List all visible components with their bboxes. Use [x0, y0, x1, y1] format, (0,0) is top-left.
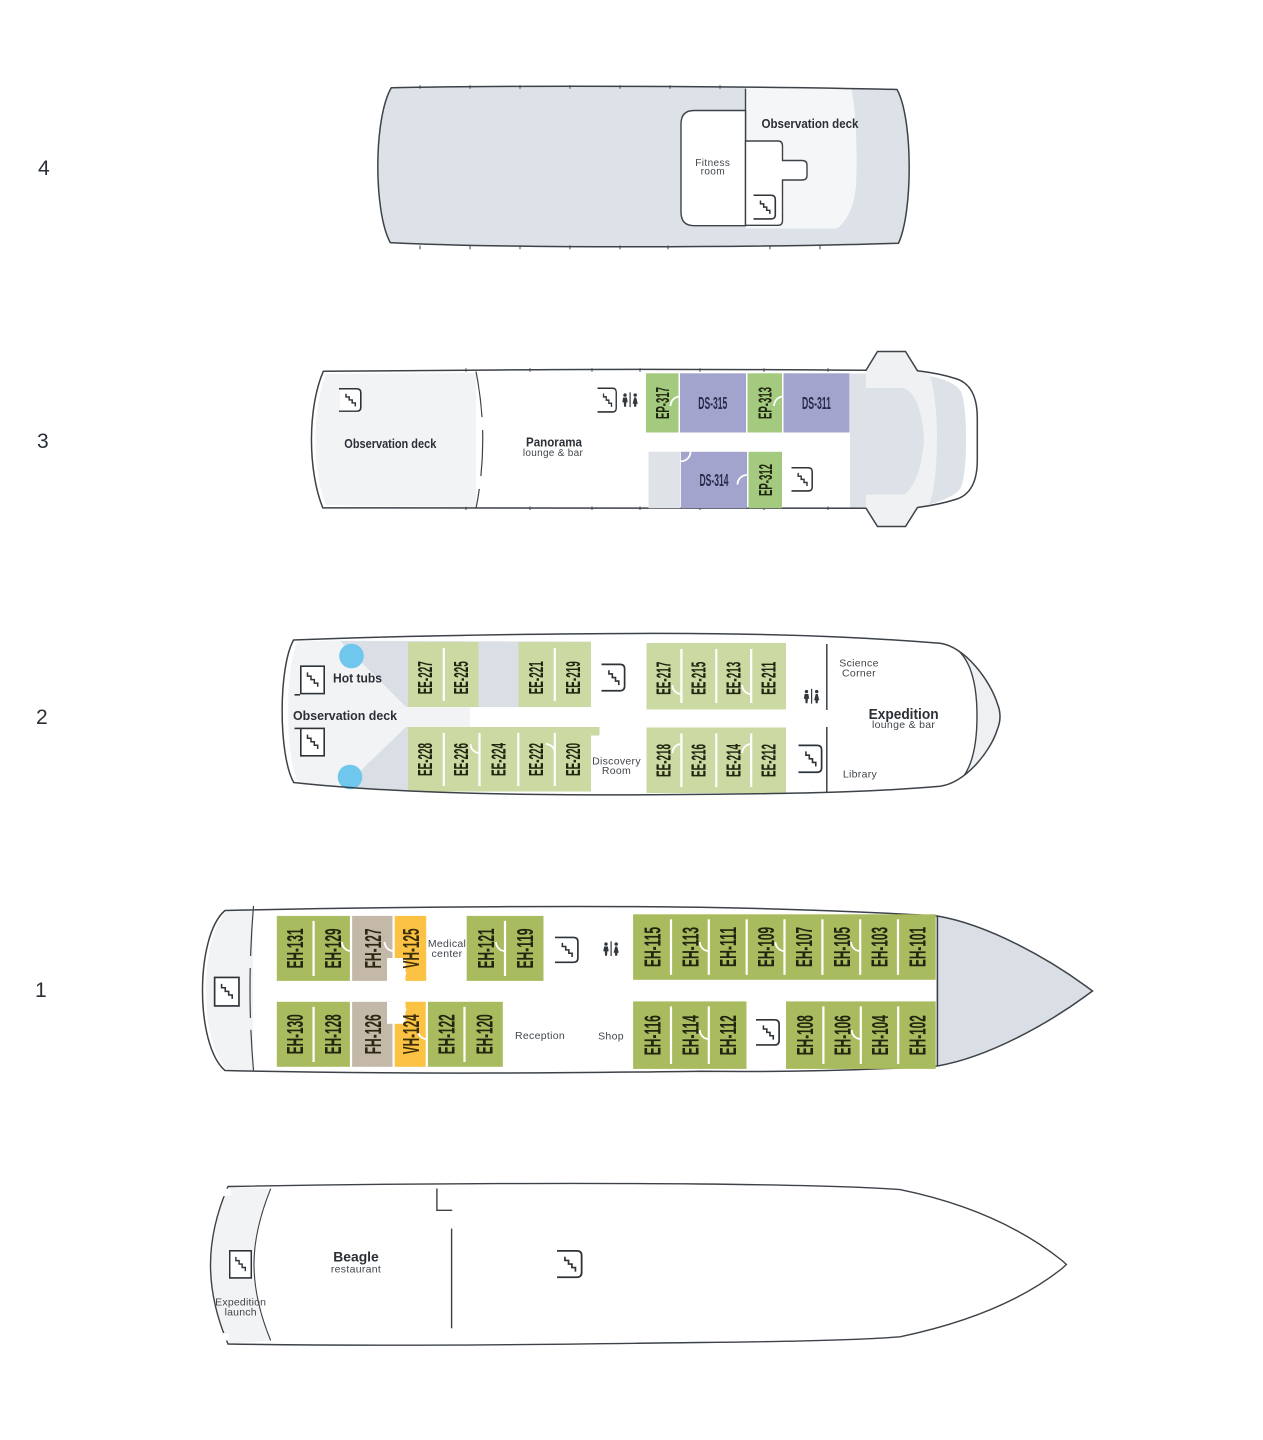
svg-text:Observation deck: Observation deck — [344, 436, 437, 451]
svg-text:FH-127: FH-127 — [360, 928, 386, 968]
svg-text:EE-225: EE-225 — [451, 661, 473, 694]
svg-text:EP-317: EP-317 — [653, 387, 673, 419]
svg-text:EE-219: EE-219 — [563, 661, 585, 694]
svg-text:EH-119: EH-119 — [512, 928, 538, 968]
svg-text:EE-224: EE-224 — [488, 743, 510, 776]
svg-text:EH-102: EH-102 — [904, 1015, 930, 1055]
svg-text:VH-125: VH-125 — [398, 928, 424, 968]
svg-text:VH-124: VH-124 — [398, 1014, 424, 1054]
svg-text:DS-315: DS-315 — [698, 393, 727, 413]
svg-text:EH-106: EH-106 — [830, 1015, 856, 1055]
svg-text:Hot tubs: Hot tubs — [333, 671, 382, 686]
svg-text:EE-211: EE-211 — [758, 662, 780, 695]
svg-text:EE-218: EE-218 — [653, 744, 675, 777]
svg-text:FH-126: FH-126 — [360, 1014, 386, 1054]
svg-text:center: center — [432, 948, 463, 960]
svg-text:EH-107: EH-107 — [791, 927, 817, 967]
svg-text:EE-216: EE-216 — [688, 744, 710, 777]
svg-text:EE-227: EE-227 — [415, 661, 437, 694]
svg-text:Shop: Shop — [598, 1031, 624, 1043]
svg-text:4: 4 — [38, 157, 50, 180]
svg-text:EH-116: EH-116 — [640, 1015, 666, 1055]
svg-text:lounge & bar: lounge & bar — [523, 448, 584, 459]
svg-text:EE-221: EE-221 — [526, 661, 548, 694]
svg-text:EH-114: EH-114 — [677, 1015, 703, 1055]
svg-text:EE-212: EE-212 — [758, 744, 780, 777]
svg-text:EH-101: EH-101 — [905, 927, 931, 967]
svg-text:EH-128: EH-128 — [320, 1014, 346, 1054]
svg-text:EH-104: EH-104 — [867, 1015, 893, 1055]
svg-text:EP-313: EP-313 — [755, 387, 775, 419]
svg-text:Beagle: Beagle — [333, 1250, 379, 1265]
svg-text:2: 2 — [36, 706, 48, 729]
svg-text:EH-130: EH-130 — [282, 1014, 308, 1054]
svg-text:Library: Library — [843, 769, 878, 781]
svg-text:restaurant: restaurant — [331, 1264, 381, 1276]
svg-text:Corner: Corner — [842, 668, 876, 680]
svg-text:DS-314: DS-314 — [700, 470, 729, 490]
svg-text:EH-108: EH-108 — [792, 1015, 818, 1055]
svg-text:EE-222: EE-222 — [526, 743, 548, 776]
svg-text:EH-121: EH-121 — [473, 928, 499, 968]
svg-text:EH-111: EH-111 — [715, 927, 741, 967]
svg-text:EE-228: EE-228 — [415, 743, 437, 776]
svg-text:EH-122: EH-122 — [433, 1014, 459, 1054]
svg-text:EH-112: EH-112 — [715, 1015, 741, 1055]
svg-text:EH-120: EH-120 — [472, 1014, 498, 1054]
svg-text:Observation deck: Observation deck — [293, 708, 398, 723]
svg-text:EE-215: EE-215 — [688, 662, 710, 695]
svg-text:EE-213: EE-213 — [723, 662, 745, 695]
svg-text:launch: launch — [225, 1307, 257, 1319]
svg-text:EE-214: EE-214 — [723, 744, 745, 777]
svg-text:room: room — [701, 167, 725, 178]
svg-text:Reception: Reception — [515, 1030, 565, 1042]
svg-text:DS-311: DS-311 — [802, 393, 831, 413]
svg-text:EH-115: EH-115 — [640, 927, 666, 967]
svg-text:EH-129: EH-129 — [320, 928, 346, 968]
svg-text:EH-103: EH-103 — [867, 927, 893, 967]
svg-text:EH-131: EH-131 — [282, 928, 308, 968]
svg-text:1: 1 — [35, 979, 47, 1002]
svg-text:Observation deck: Observation deck — [762, 116, 860, 131]
svg-text:EH-113: EH-113 — [677, 927, 703, 967]
svg-text:3: 3 — [37, 430, 49, 453]
svg-text:EE-217: EE-217 — [653, 662, 675, 695]
svg-text:EE-226: EE-226 — [451, 743, 473, 776]
svg-text:EE-220: EE-220 — [563, 743, 585, 776]
svg-text:EP-312: EP-312 — [756, 464, 776, 496]
svg-text:EH-109: EH-109 — [753, 927, 779, 967]
svg-text:Room: Room — [602, 765, 631, 777]
svg-text:lounge & bar: lounge & bar — [872, 719, 935, 731]
svg-text:EH-105: EH-105 — [829, 927, 855, 967]
